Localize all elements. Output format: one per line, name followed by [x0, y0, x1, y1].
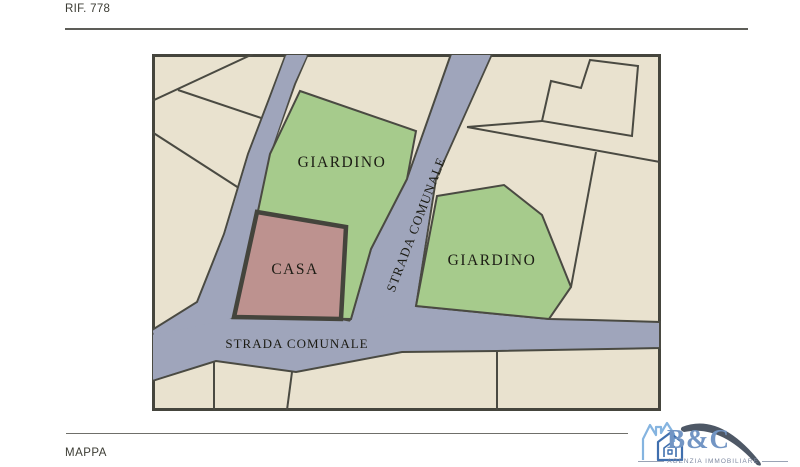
- tagline-rule-right: [762, 461, 788, 462]
- document-page: RIF. 778: [0, 0, 800, 467]
- tagline-rule-left: [638, 461, 664, 462]
- reference-number: RIF. 778: [65, 3, 110, 15]
- footer-divider: [66, 433, 628, 434]
- footer-caption: MAPPA: [65, 447, 107, 459]
- tagline-text: AGENZIA IMMOBILIARE: [667, 458, 759, 465]
- house-label: CASA: [271, 261, 318, 278]
- logo-tagline: AGENZIA IMMOBILIARE: [638, 458, 788, 465]
- logo-initials: B&C: [667, 424, 730, 455]
- map-canvas: GIARDINO GIARDINO CASA STRADA COMUNALE S…: [152, 54, 661, 411]
- garden-right-label: GIARDINO: [448, 252, 537, 269]
- cadastral-map: GIARDINO GIARDINO CASA STRADA COMUNALE S…: [152, 54, 661, 411]
- road-horizontal-label: STRADA COMUNALE: [225, 336, 368, 351]
- garden-upper-label: GIARDINO: [298, 154, 387, 171]
- agency-logo: B&C AGENZIA IMMOBILIARE BONAPACE & CEREG…: [630, 412, 800, 467]
- header-divider: [65, 28, 748, 30]
